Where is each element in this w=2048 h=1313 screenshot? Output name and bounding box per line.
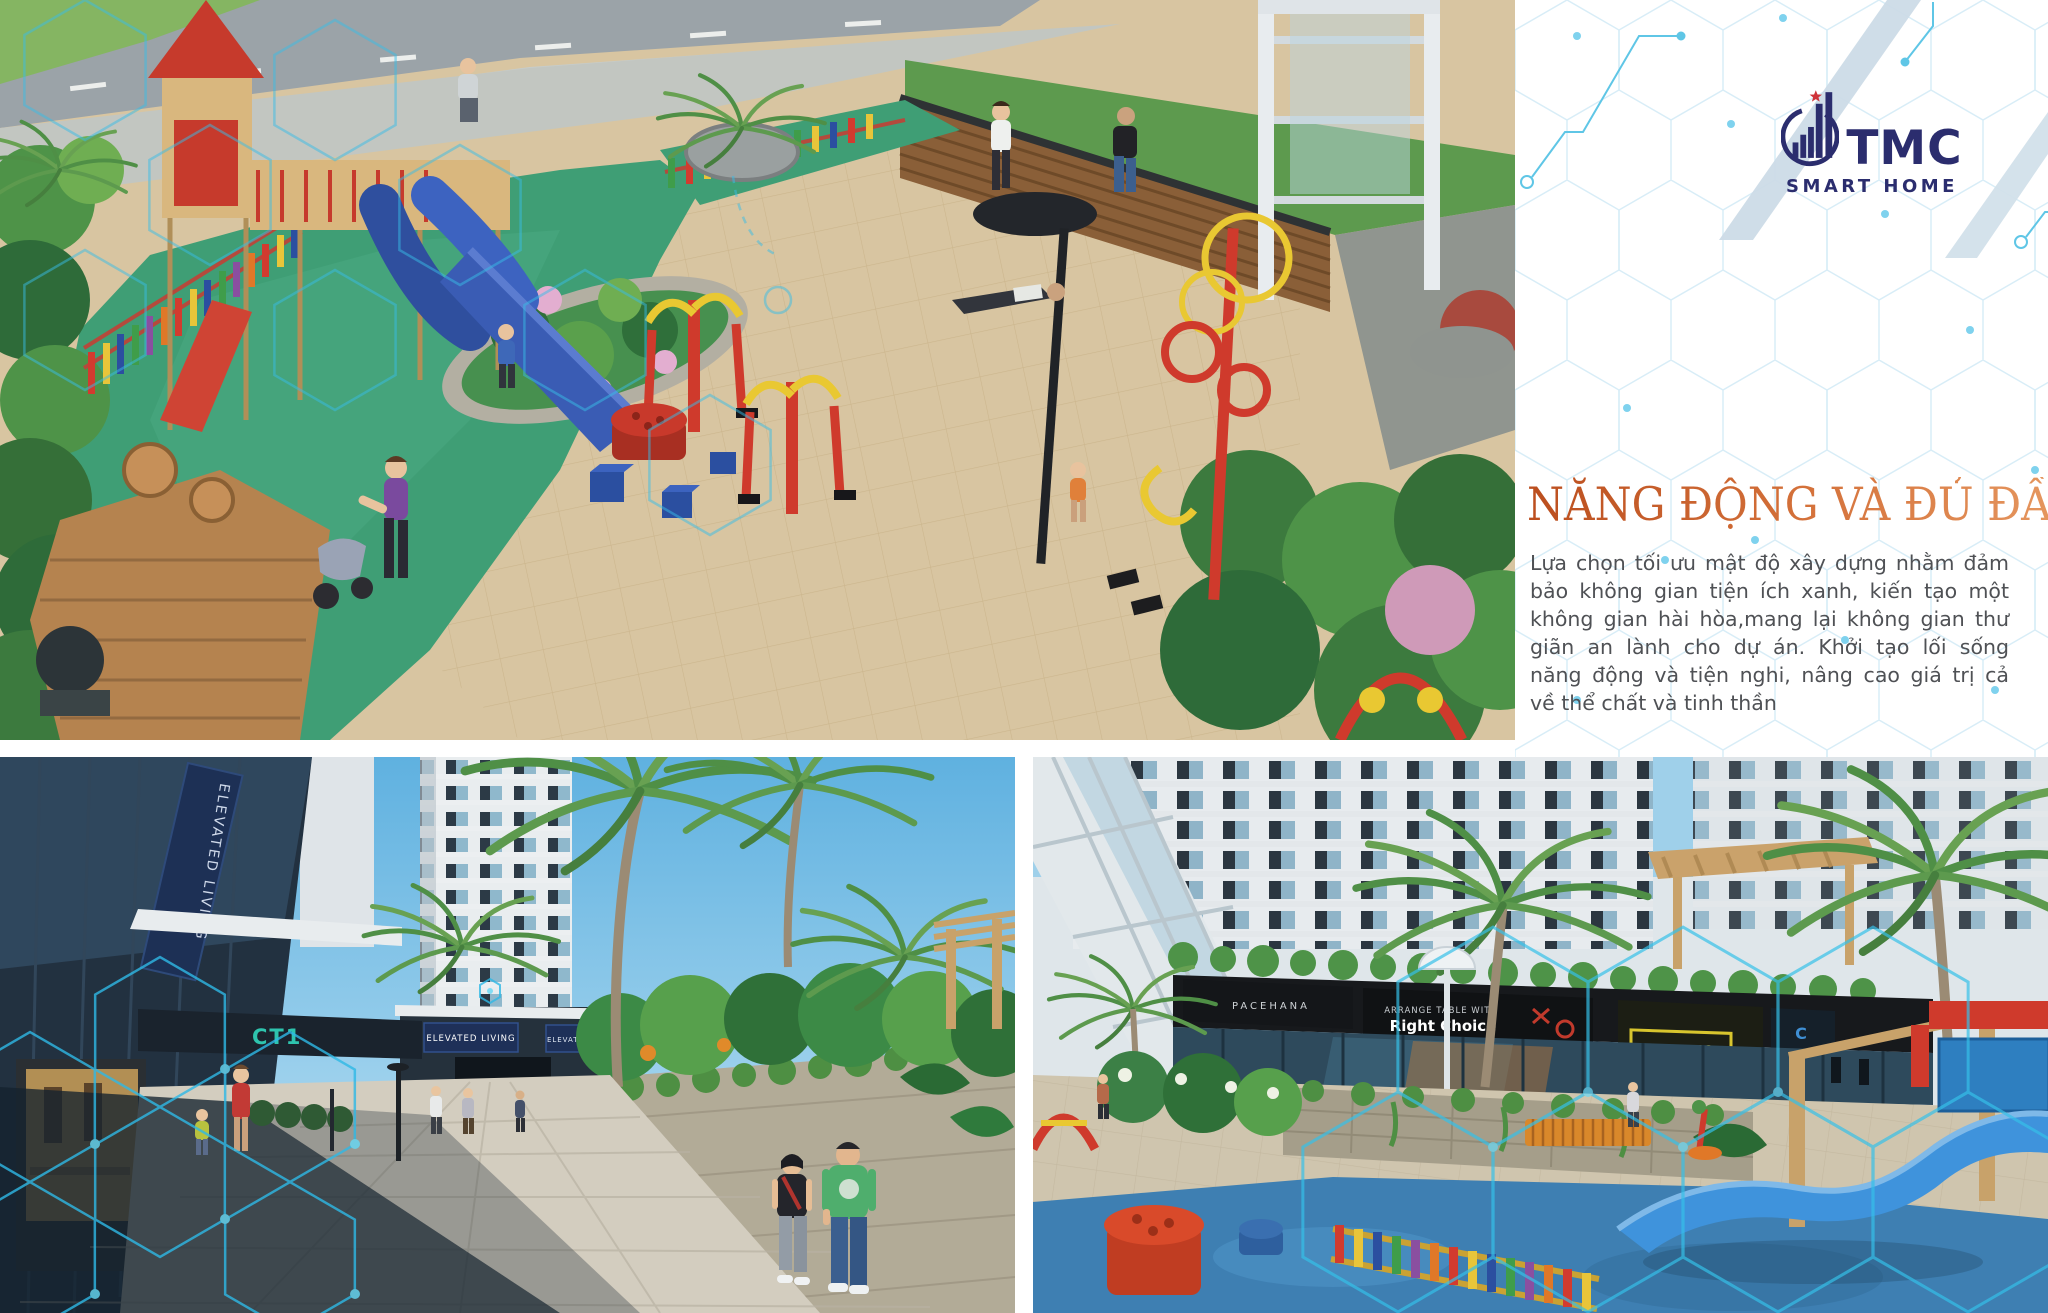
photo-street-view: ELEVATED LIVING ELEVATED LIVING ELEVATED… xyxy=(0,757,1015,1313)
tmc-logo: TMC SMART HOME xyxy=(1777,82,1967,197)
rear-tower xyxy=(300,757,374,947)
sign-tagline-text: ARRANGE TABLE WITH xyxy=(1384,1006,1498,1016)
main-tower xyxy=(420,757,572,1019)
sign-title-text: Right Choice xyxy=(1390,1017,1497,1035)
building-logo-icon xyxy=(1781,82,1839,170)
plaza-scene: PACEHANA ARRANGE TABLE WITH Right Choice… xyxy=(1033,757,2048,1313)
paragraph-line: năng động và tiện nghi, nâng cao giá trị… xyxy=(1530,661,2009,689)
sign-pacehana-text: PACEHANA xyxy=(1232,1001,1310,1012)
logo-tagline: SMART HOME xyxy=(1777,176,1967,197)
brochure-page: TMC SMART HOME NĂNG ĐỘNG VÀ ĐỦ ĐẦY Lựa c… xyxy=(0,0,2048,1313)
section-heading: NĂNG ĐỘNG VÀ ĐỦ ĐẦY xyxy=(1527,477,2048,531)
red-mushroom-seat xyxy=(1104,1205,1204,1295)
stroller xyxy=(318,538,366,580)
person-distant xyxy=(430,1086,442,1134)
playground-scene xyxy=(0,0,1515,740)
entrance-banner-text: ELEVATED LIVING xyxy=(426,1034,515,1044)
paragraph-line: giãn an lành cho dự án. Khởi tạo lối sốn… xyxy=(1530,633,2009,661)
person-distant xyxy=(1097,1074,1109,1119)
paragraph-line: về thể chất và tinh thần xyxy=(1530,689,2009,717)
street-scene: ELEVATED LIVING ELEVATED LIVING ELEVATED… xyxy=(0,757,1015,1313)
info-panel: TMC SMART HOME NĂNG ĐỘNG VÀ ĐỦ ĐẦY Lựa c… xyxy=(1515,0,2048,757)
photo-retail-plaza: PACEHANA ARRANGE TABLE WITH Right Choice… xyxy=(1033,757,2048,1313)
ct1-sign: CT1 xyxy=(252,1025,302,1049)
logo-name: TMC xyxy=(1846,128,1962,170)
star-icon xyxy=(1810,90,1822,101)
person-distant xyxy=(515,1091,525,1133)
section-paragraph: Lựa chọn tối ưu mật độ xây dựng nhằm đảm… xyxy=(1530,549,2009,717)
person-sitting-deck xyxy=(458,58,478,122)
blue-stool xyxy=(1239,1219,1283,1255)
paragraph-line: bảo không gian tiện ích xanh, kiến tạo m… xyxy=(1530,577,2009,605)
svg-text:C: C xyxy=(1795,1024,1807,1043)
photo-playground-aerial xyxy=(0,0,1515,740)
person-distant xyxy=(462,1088,474,1134)
paragraph-line: không gian hài hòa,mang lại không gian t… xyxy=(1530,605,2009,633)
paragraph-line: Lựa chọn tối ưu mật độ xây dựng nhằm đảm xyxy=(1530,549,2009,577)
